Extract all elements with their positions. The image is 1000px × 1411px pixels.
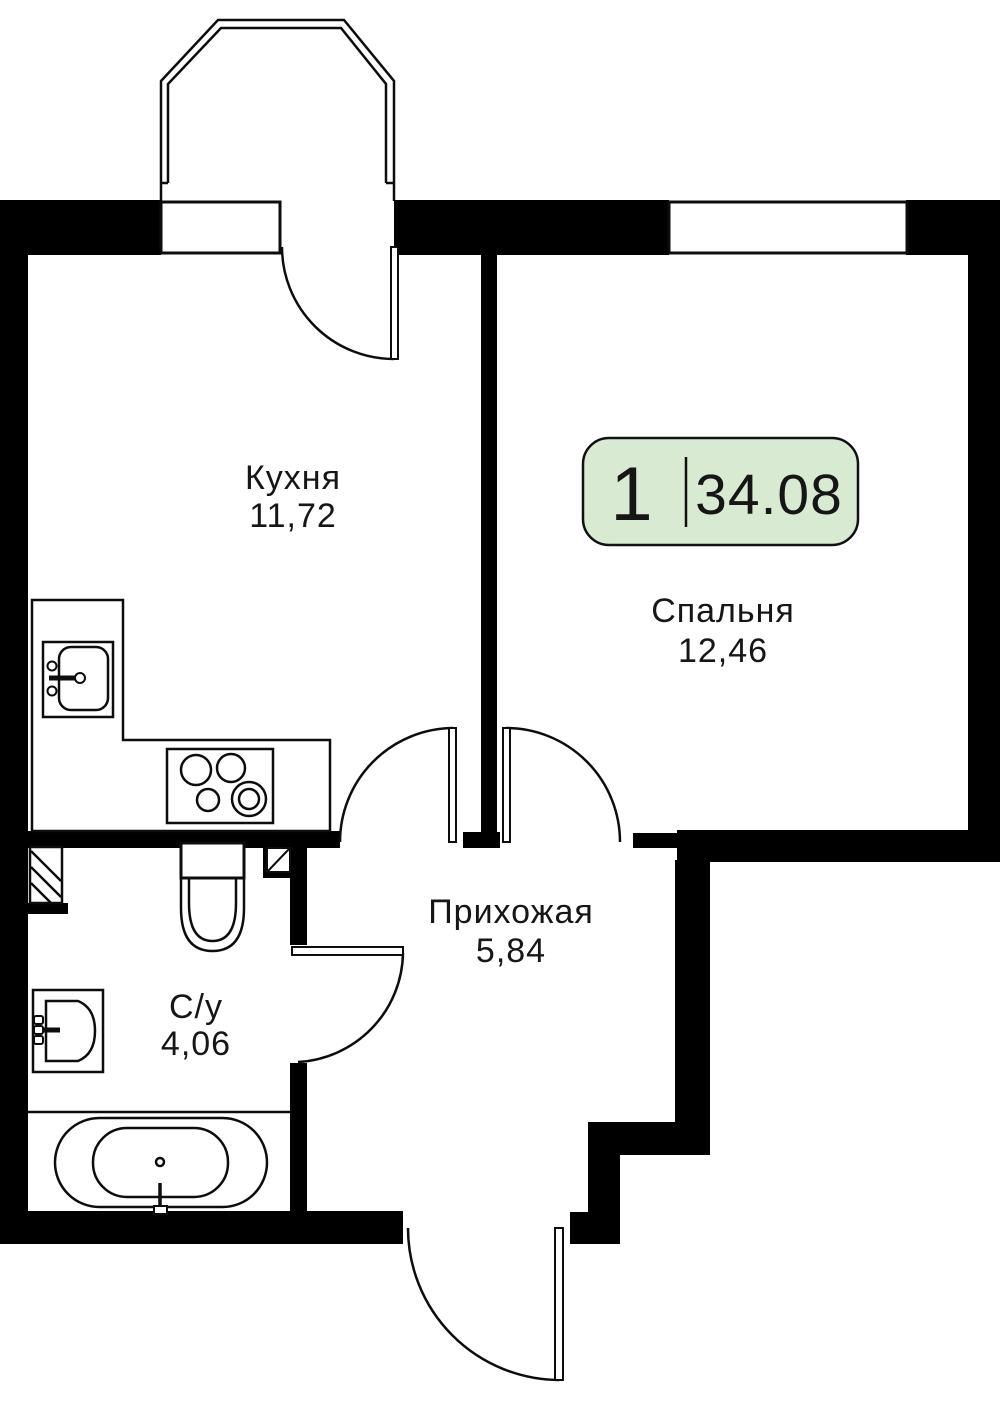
wall-bathroom-right-lower (290, 1063, 307, 1212)
bedroom-area: 12,46 (678, 632, 768, 670)
wall-partition-foot (463, 832, 500, 848)
bathroom-door-arc (298, 953, 403, 1062)
wall-entry-right-stub (570, 1212, 620, 1244)
kitchen-door-leaf (449, 728, 456, 842)
toilet-icon (181, 843, 244, 951)
wall-partition-kitchen-bedroom (481, 253, 497, 834)
area-badge: 1 34.08 (583, 438, 858, 545)
wall-right (968, 200, 1000, 862)
wall-shaft-stub (28, 903, 68, 914)
wall-bedroom-hall-stub (633, 833, 677, 848)
bathroom-faucet-knob (34, 1036, 43, 1044)
kitchen-counter (32, 600, 330, 831)
bathtub-drain (156, 1158, 164, 1166)
entry-door-arc (408, 1228, 559, 1380)
balcony-door-leaf (391, 247, 398, 359)
bedroom-door-arc (506, 728, 620, 842)
hallway-label: Прихожая (428, 893, 594, 931)
wall-top-middle (394, 200, 669, 255)
kitchen-area: 11,72 (249, 497, 337, 535)
bedroom-door-leaf (503, 728, 510, 842)
counter-outline (32, 600, 330, 831)
kitchen-faucet-head (75, 673, 85, 683)
bay-window-inner-line (168, 28, 386, 183)
shaft-diagonal (267, 848, 290, 872)
doors (282, 247, 620, 1380)
toilet-tank (181, 843, 244, 878)
kitchen-label: Кухня (245, 459, 341, 497)
bathroom-faucet-knob (34, 1026, 43, 1034)
bathtub-faucet-head (154, 1206, 167, 1214)
wall-bottom (0, 1211, 403, 1244)
bay-window-outer-line (161, 20, 394, 201)
floor-plan-page: 1 34.08 Кухня 11,72 Спальня 12,46 Прихож… (0, 0, 1000, 1411)
entry-door-leaf (555, 1228, 563, 1380)
wall-top-kitchen-left (0, 200, 161, 255)
kitchen-balcony-window (161, 202, 280, 253)
bay-window (161, 20, 394, 201)
bathroom-area: 4,06 (161, 1025, 231, 1063)
bathroom-sink-icon (33, 990, 103, 1072)
wall-left (0, 200, 28, 1244)
bathroom-label: С/у (169, 988, 223, 1026)
wall-hall-right-upper (675, 860, 710, 1155)
bedroom-label: Спальня (651, 592, 795, 630)
total-area: 34.08 (695, 463, 843, 527)
bathroom-faucet-knob (34, 1016, 43, 1024)
rooms-count: 1 (610, 452, 653, 537)
wall-bedroom-bottom (677, 830, 1000, 862)
balcony-door-arc (282, 247, 394, 359)
toilet-bowl-inner (189, 879, 236, 941)
kitchen-door-arc (340, 728, 453, 842)
shaft-hatched (30, 847, 62, 903)
bedroom-window (669, 202, 907, 253)
walls (0, 200, 1000, 1244)
hallway-area: 5,84 (476, 932, 546, 970)
bathroom-door-leaf (292, 947, 403, 955)
bathtub-icon (28, 1112, 290, 1214)
floor-plan: 1 34.08 Кухня 11,72 Спальня 12,46 Прихож… (0, 0, 1000, 1411)
